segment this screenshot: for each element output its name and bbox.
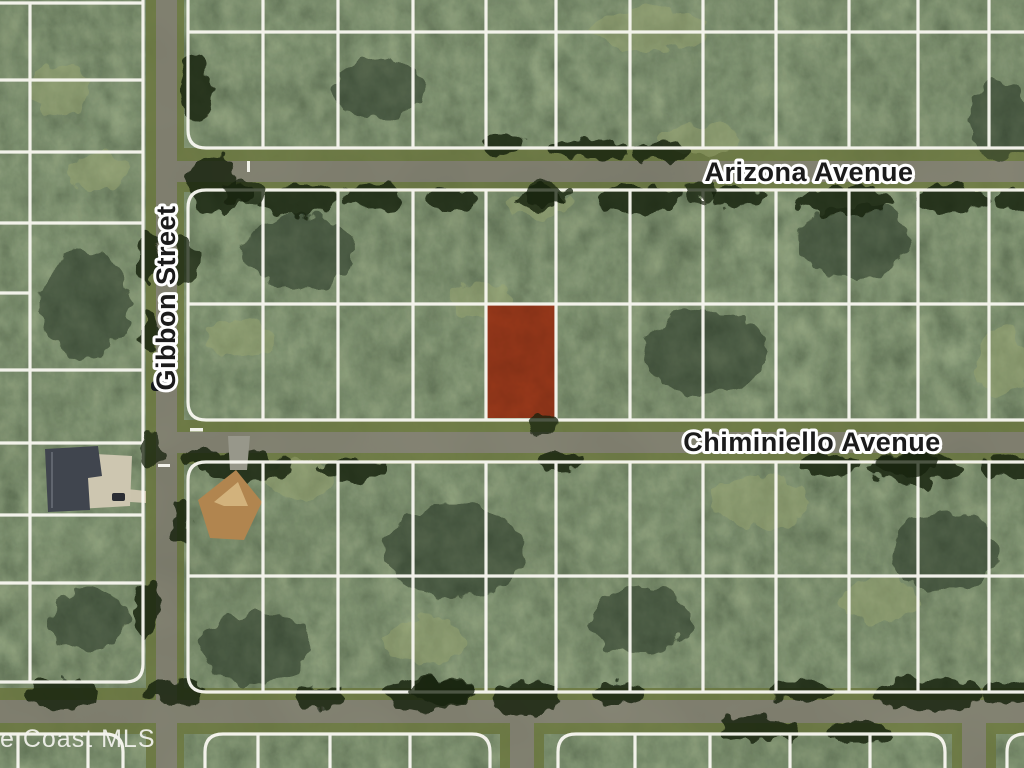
stop-bar-gibbon <box>158 464 170 467</box>
gibbon-street-label-group: Gibbon Street <box>151 205 181 390</box>
stop-bar-arizona <box>247 161 250 172</box>
parcel-map-image[interactable]: Arizona Avenue Chiminiello Avenue Gibbon… <box>0 0 1024 768</box>
arizona-avenue-label: Arizona Avenue <box>704 157 913 187</box>
parked-car <box>112 493 125 501</box>
west-house <box>45 446 132 512</box>
driveway-east-house <box>228 436 250 470</box>
chiminiello-avenue-label: Chiminiello Avenue <box>683 427 941 457</box>
highlighted-parcel <box>487 305 555 418</box>
gibbon-street-label: Gibbon Street <box>151 205 181 390</box>
stop-bar-chiminiello <box>190 428 203 432</box>
satellite-map-canvas: Arizona Avenue Chiminiello Avenue Gibbon… <box>0 0 1024 768</box>
mls-watermark: e Coast MLS <box>0 725 156 753</box>
